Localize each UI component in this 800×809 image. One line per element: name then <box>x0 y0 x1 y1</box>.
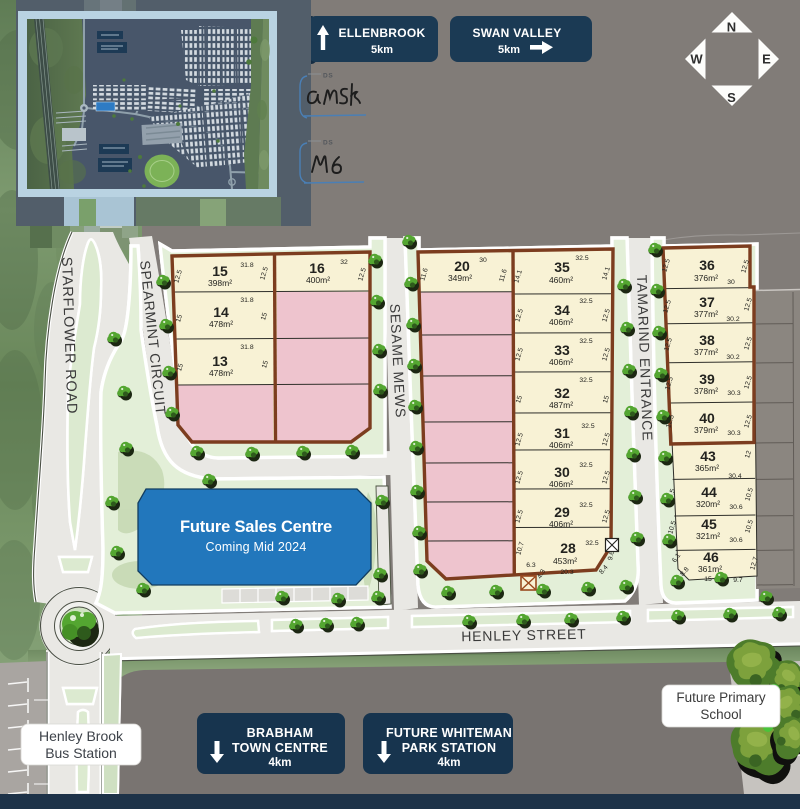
svg-text:32.5: 32.5 <box>579 298 592 305</box>
svg-text:478m²: 478m² <box>209 368 233 378</box>
svg-text:20: 20 <box>454 258 470 274</box>
svg-text:400m²: 400m² <box>306 275 330 285</box>
svg-text:28: 28 <box>560 540 576 556</box>
svg-text:32.5: 32.5 <box>579 462 592 469</box>
svg-text:29: 29 <box>554 504 570 520</box>
svg-text:320m²: 320m² <box>696 499 720 509</box>
svg-text:32: 32 <box>554 385 570 401</box>
svg-text:School: School <box>700 707 741 722</box>
svg-text:HENLEY STREET: HENLEY STREET <box>461 626 587 645</box>
svg-text:Bus Station: Bus Station <box>45 745 117 761</box>
svg-text:478m²: 478m² <box>209 319 233 329</box>
svg-text:15: 15 <box>212 263 228 279</box>
svg-text:5km: 5km <box>371 44 393 56</box>
svg-text:398m²: 398m² <box>208 278 232 288</box>
svg-text:5km: 5km <box>498 44 520 56</box>
svg-text:TOWN CENTRE: TOWN CENTRE <box>232 741 328 755</box>
svg-text:32.5: 32.5 <box>579 338 592 345</box>
svg-text:453m²: 453m² <box>553 556 577 566</box>
svg-text:31.8: 31.8 <box>240 262 253 269</box>
svg-text:13: 13 <box>212 353 228 369</box>
svg-text:Henley Brook: Henley Brook <box>39 728 124 744</box>
svg-text:4km: 4km <box>437 757 460 769</box>
svg-text:377m²: 377m² <box>694 309 718 319</box>
svg-text:32.5: 32.5 <box>575 255 588 262</box>
svg-text:365m²: 365m² <box>695 463 719 473</box>
svg-text:31: 31 <box>554 425 570 441</box>
svg-text:DS: DS <box>323 140 333 147</box>
svg-text:Coming Mid 2024: Coming Mid 2024 <box>206 540 307 554</box>
svg-text:460m²: 460m² <box>549 275 573 285</box>
svg-text:15: 15 <box>704 576 712 583</box>
svg-text:32: 32 <box>340 259 348 266</box>
svg-text:32.5: 32.5 <box>579 377 592 384</box>
svg-text:30: 30 <box>479 257 487 264</box>
svg-text:35: 35 <box>554 259 570 275</box>
svg-text:31.8: 31.8 <box>240 297 253 304</box>
svg-text:406m²: 406m² <box>549 357 573 367</box>
svg-text:16: 16 <box>309 260 325 276</box>
svg-text:Future Sales Centre: Future Sales Centre <box>180 518 332 536</box>
svg-text:45: 45 <box>701 516 717 532</box>
svg-text:44: 44 <box>701 484 717 500</box>
svg-text:30.6: 30.6 <box>729 504 742 511</box>
svg-text:30: 30 <box>727 279 735 286</box>
svg-text:40: 40 <box>699 410 715 426</box>
svg-text:30.2: 30.2 <box>726 354 739 361</box>
svg-text:34: 34 <box>554 302 570 318</box>
svg-text:30.3: 30.3 <box>727 390 740 397</box>
svg-text:E: E <box>762 52 771 67</box>
svg-text:321m²: 321m² <box>696 531 720 541</box>
svg-text:S: S <box>727 90 736 105</box>
svg-text:FUTURE WHITEMAN: FUTURE WHITEMAN <box>386 726 512 740</box>
svg-text:BRABHAM: BRABHAM <box>247 726 314 740</box>
svg-text:W: W <box>690 52 703 67</box>
svg-text:31.8: 31.8 <box>240 344 253 351</box>
svg-text:379m²: 379m² <box>694 425 718 435</box>
svg-text:32.5: 32.5 <box>581 423 594 430</box>
svg-text:46: 46 <box>703 549 719 565</box>
svg-text:487m²: 487m² <box>549 400 573 410</box>
svg-text:9.7: 9.7 <box>733 577 743 584</box>
svg-text:PARK STATION: PARK STATION <box>402 741 497 755</box>
svg-text:33: 33 <box>554 342 570 358</box>
svg-text:N: N <box>727 20 736 35</box>
svg-text:377m²: 377m² <box>694 347 718 357</box>
svg-text:32.5: 32.5 <box>585 540 598 547</box>
svg-text:37: 37 <box>699 294 715 310</box>
svg-text:406m²: 406m² <box>549 317 573 327</box>
svg-text:4km: 4km <box>268 757 291 769</box>
svg-text:376m²: 376m² <box>694 273 718 283</box>
svg-text:30: 30 <box>554 464 570 480</box>
svg-text:43: 43 <box>700 448 716 464</box>
svg-text:14: 14 <box>213 304 229 320</box>
svg-text:ELLENBROOK: ELLENBROOK <box>339 26 426 40</box>
svg-text:32.5: 32.5 <box>579 502 592 509</box>
svg-text:36: 36 <box>699 257 715 273</box>
svg-text:DS: DS <box>323 73 333 80</box>
svg-text:406m²: 406m² <box>549 440 573 450</box>
svg-text:406m²: 406m² <box>549 519 573 529</box>
svg-text:6.3: 6.3 <box>526 562 536 569</box>
svg-text:20.3: 20.3 <box>560 569 573 576</box>
svg-text:30.3: 30.3 <box>727 430 740 437</box>
svg-text:39: 39 <box>699 371 715 387</box>
svg-text:Future Primary: Future Primary <box>676 690 766 705</box>
svg-text:30.4: 30.4 <box>728 473 741 480</box>
svg-text:30.2: 30.2 <box>726 316 739 323</box>
svg-text:SWAN VALLEY: SWAN VALLEY <box>472 26 561 40</box>
svg-text:349m²: 349m² <box>448 273 472 283</box>
svg-text:30.6: 30.6 <box>729 537 742 544</box>
svg-text:378m²: 378m² <box>694 386 718 396</box>
svg-text:406m²: 406m² <box>549 479 573 489</box>
svg-text:38: 38 <box>699 332 715 348</box>
